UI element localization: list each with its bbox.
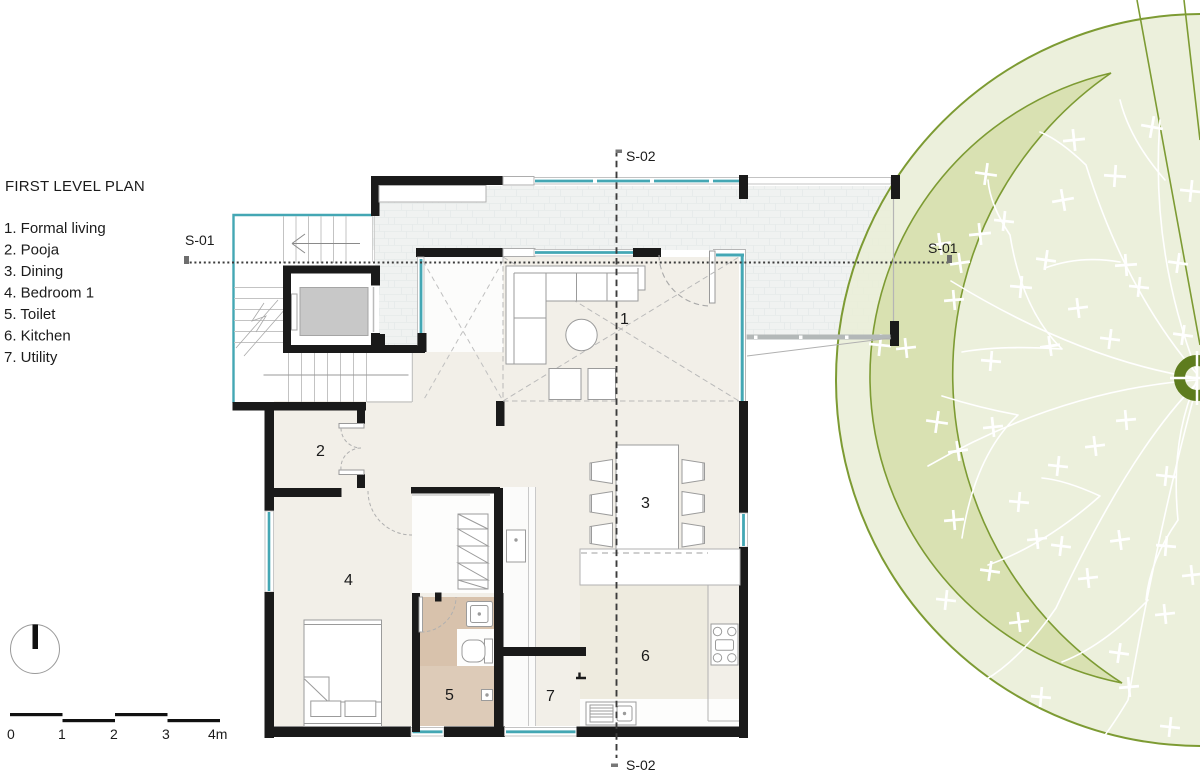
svg-text:3. Dining: 3. Dining	[4, 263, 63, 280]
svg-text:1: 1	[58, 726, 66, 742]
svg-text:0: 0	[7, 726, 15, 742]
svg-text:7: 7	[546, 688, 555, 705]
svg-text:4. Bedroom 1: 4. Bedroom 1	[4, 285, 94, 302]
svg-text:6: 6	[641, 648, 650, 665]
svg-text:4: 4	[344, 572, 353, 589]
svg-text:1: 1	[620, 311, 629, 328]
svg-text:3: 3	[641, 495, 650, 512]
svg-text:5. Toilet: 5. Toilet	[4, 306, 56, 323]
svg-text:FIRST LEVEL PLAN: FIRST LEVEL PLAN	[5, 178, 145, 195]
svg-text:2: 2	[110, 726, 118, 742]
svg-text:S-02: S-02	[626, 148, 656, 164]
svg-text:6. Kitchen: 6. Kitchen	[4, 328, 71, 345]
svg-text:S-01: S-01	[185, 232, 215, 248]
svg-text:2. Pooja: 2. Pooja	[4, 242, 60, 259]
svg-text:5: 5	[445, 687, 454, 704]
svg-text:S-02: S-02	[626, 757, 656, 773]
svg-text:2: 2	[316, 443, 325, 460]
svg-text:7. Utility: 7. Utility	[4, 349, 58, 366]
svg-text:3: 3	[162, 726, 170, 742]
svg-text:4m: 4m	[208, 726, 227, 742]
svg-text:1. Formal living: 1. Formal living	[4, 220, 106, 237]
svg-text:S-01: S-01	[928, 240, 958, 256]
